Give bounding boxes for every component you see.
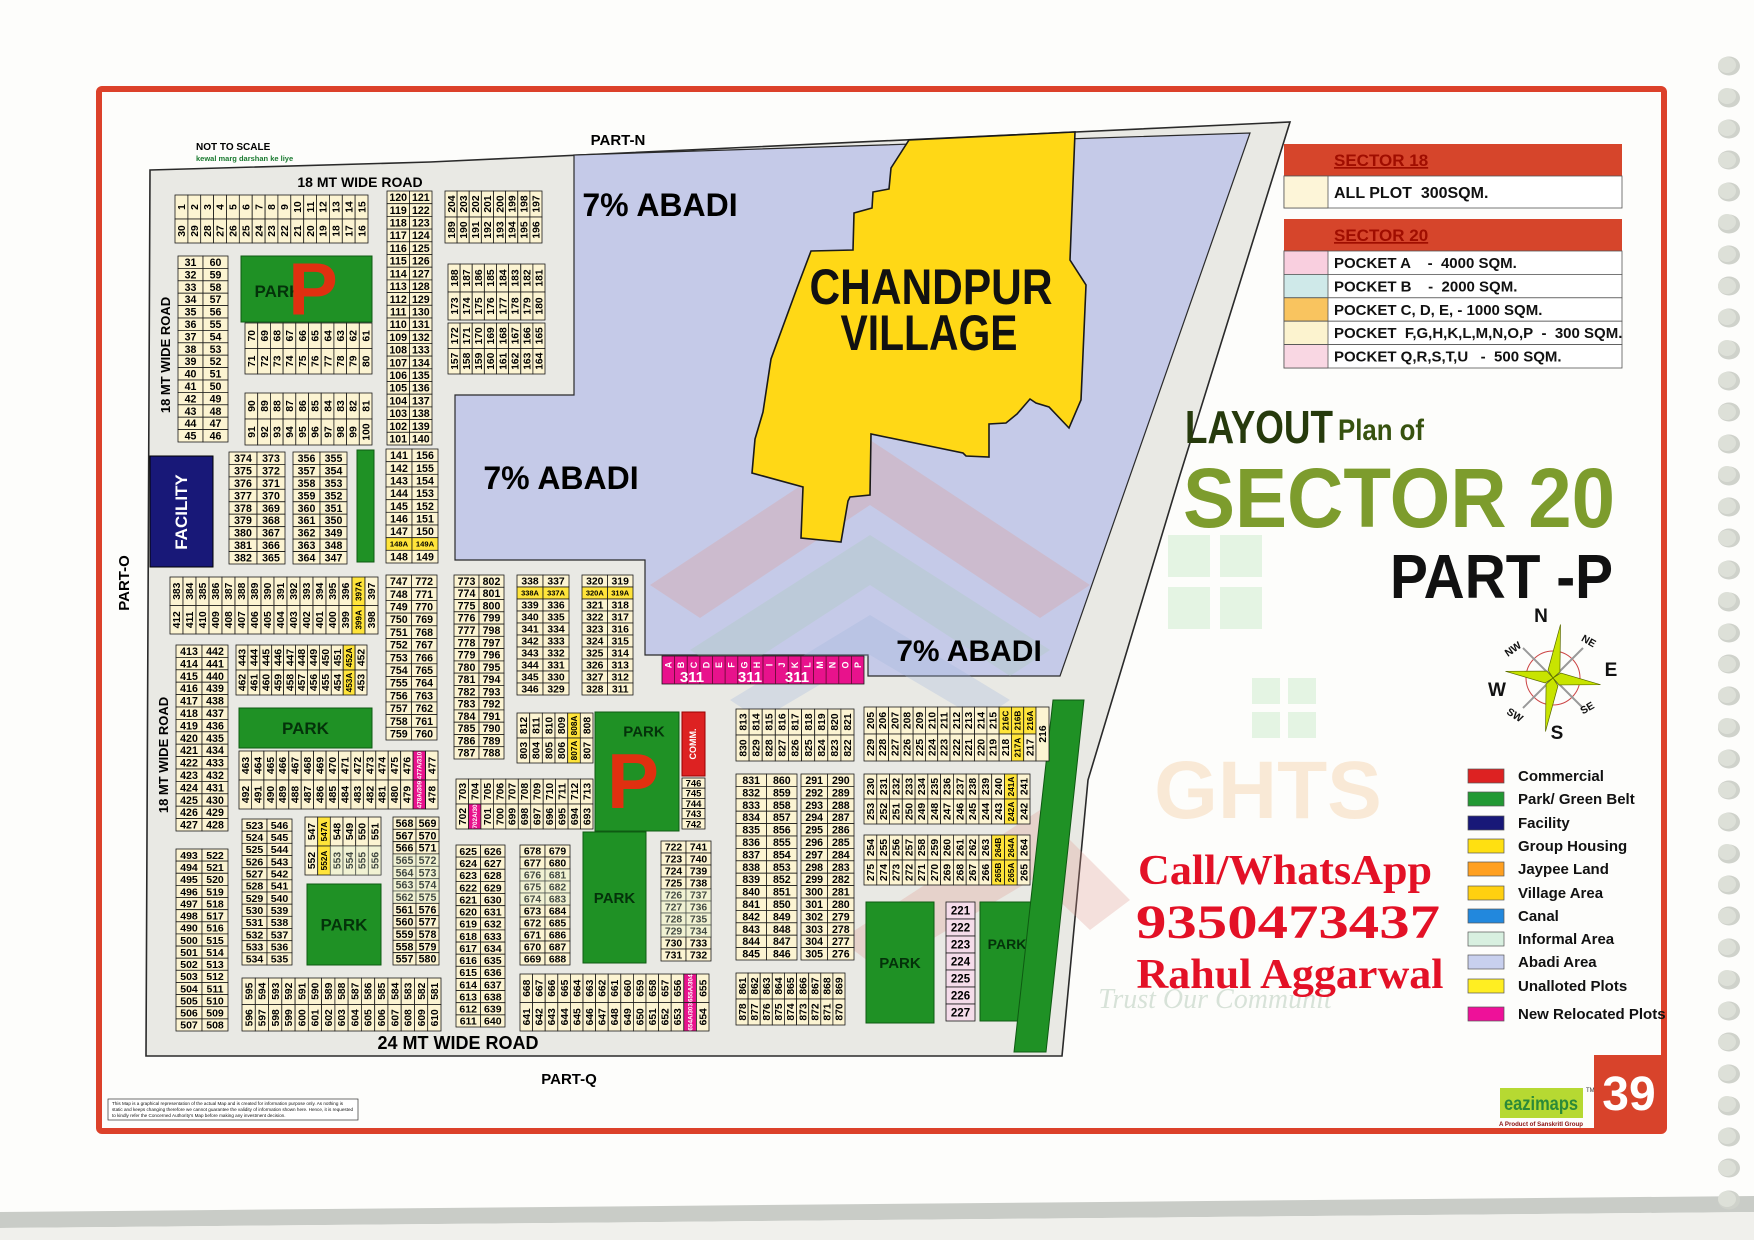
svg-text:853: 853 bbox=[773, 862, 791, 874]
svg-text:861: 861 bbox=[738, 977, 749, 994]
svg-text:783: 783 bbox=[458, 699, 476, 711]
svg-text:439: 439 bbox=[206, 683, 224, 695]
svg-text:531: 531 bbox=[246, 917, 264, 929]
svg-text:192: 192 bbox=[483, 221, 494, 238]
svg-text:339: 339 bbox=[521, 601, 539, 612]
svg-text:K: K bbox=[790, 661, 800, 668]
svg-text:H: H bbox=[752, 662, 762, 669]
svg-text:812: 812 bbox=[519, 717, 530, 734]
svg-text:654A/303: 654A/303 bbox=[687, 1003, 694, 1031]
svg-text:P: P bbox=[288, 248, 337, 331]
svg-text:842: 842 bbox=[742, 911, 760, 923]
svg-text:711: 711 bbox=[558, 783, 569, 800]
svg-text:793: 793 bbox=[483, 686, 501, 698]
svg-text:517: 517 bbox=[206, 910, 224, 922]
svg-text:COMM.: COMM. bbox=[688, 729, 698, 760]
svg-text:7% ABADI: 7% ABADI bbox=[483, 460, 638, 496]
svg-text:375: 375 bbox=[234, 466, 252, 478]
svg-text:491: 491 bbox=[253, 786, 264, 803]
svg-text:878: 878 bbox=[738, 1003, 749, 1020]
svg-text:619: 619 bbox=[459, 919, 477, 931]
svg-text:464: 464 bbox=[253, 757, 264, 774]
svg-text:366: 366 bbox=[262, 540, 280, 552]
svg-text:459: 459 bbox=[273, 674, 284, 691]
svg-text:667: 667 bbox=[535, 979, 546, 996]
svg-text:529: 529 bbox=[246, 893, 264, 905]
svg-text:295: 295 bbox=[805, 825, 823, 837]
svg-text:836: 836 bbox=[742, 837, 760, 849]
svg-text:488: 488 bbox=[291, 786, 302, 803]
svg-text:596: 596 bbox=[244, 1009, 255, 1026]
svg-text:288: 288 bbox=[832, 800, 850, 812]
svg-text:845: 845 bbox=[742, 949, 760, 961]
svg-text:401: 401 bbox=[315, 611, 326, 628]
svg-text:457: 457 bbox=[297, 674, 308, 691]
svg-text:56: 56 bbox=[210, 307, 222, 319]
svg-text:869: 869 bbox=[835, 977, 846, 994]
svg-text:153: 153 bbox=[416, 488, 434, 500]
svg-text:472: 472 bbox=[353, 757, 364, 774]
svg-text:414: 414 bbox=[180, 658, 198, 670]
svg-text:822: 822 bbox=[843, 739, 854, 756]
svg-text:185: 185 bbox=[486, 269, 497, 286]
svg-text:248: 248 bbox=[930, 803, 941, 820]
svg-text:4: 4 bbox=[216, 204, 227, 210]
svg-text:118: 118 bbox=[390, 218, 407, 230]
svg-text:50: 50 bbox=[210, 381, 222, 393]
svg-text:474: 474 bbox=[378, 757, 389, 774]
svg-text:77: 77 bbox=[323, 355, 334, 367]
svg-text:607: 607 bbox=[390, 1009, 401, 1026]
svg-text:380: 380 bbox=[234, 528, 252, 540]
svg-text:760: 760 bbox=[415, 729, 433, 741]
svg-text:837: 837 bbox=[742, 849, 760, 861]
svg-text:211: 211 bbox=[940, 712, 951, 729]
svg-text:86: 86 bbox=[298, 400, 309, 412]
svg-text:Call/WhatsApp: Call/WhatsApp bbox=[1138, 848, 1432, 894]
svg-text:813: 813 bbox=[738, 713, 749, 730]
svg-text:217: 217 bbox=[1026, 739, 1037, 756]
svg-text:206: 206 bbox=[878, 712, 889, 729]
svg-text:132: 132 bbox=[412, 332, 430, 344]
svg-text:91: 91 bbox=[247, 426, 258, 438]
svg-text:VILLAGE: VILLAGE bbox=[841, 305, 1018, 361]
svg-text:693: 693 bbox=[583, 808, 594, 825]
svg-text:382: 382 bbox=[234, 553, 252, 565]
svg-text:673: 673 bbox=[524, 907, 542, 918]
svg-text:338A: 338A bbox=[521, 589, 539, 598]
svg-text:583: 583 bbox=[404, 982, 415, 999]
svg-text:344: 344 bbox=[521, 661, 539, 672]
svg-text:638: 638 bbox=[484, 991, 502, 1003]
svg-text:559: 559 bbox=[396, 929, 414, 941]
svg-text:119: 119 bbox=[390, 205, 407, 217]
svg-text:655: 655 bbox=[698, 979, 709, 996]
svg-text:754: 754 bbox=[390, 665, 408, 677]
svg-text:340: 340 bbox=[521, 613, 539, 624]
svg-text:165: 165 bbox=[535, 327, 546, 344]
svg-text:364: 364 bbox=[298, 553, 316, 565]
svg-text:45: 45 bbox=[185, 431, 197, 443]
svg-text:579: 579 bbox=[419, 941, 437, 953]
svg-text:337A: 337A bbox=[547, 589, 565, 598]
svg-text:226: 226 bbox=[903, 739, 914, 756]
svg-text:221: 221 bbox=[951, 906, 971, 918]
svg-text:523: 523 bbox=[246, 820, 264, 832]
svg-text:790: 790 bbox=[483, 723, 501, 735]
svg-text:GHTS: GHTS bbox=[1154, 745, 1382, 836]
svg-text:D: D bbox=[701, 661, 711, 668]
svg-text:804: 804 bbox=[532, 742, 543, 759]
svg-text:405: 405 bbox=[263, 611, 274, 628]
svg-text:SECTOR 20: SECTOR 20 bbox=[1334, 226, 1428, 245]
svg-text:568: 568 bbox=[396, 818, 414, 830]
svg-text:779: 779 bbox=[458, 650, 476, 662]
svg-text:277: 277 bbox=[832, 936, 850, 948]
svg-text:236: 236 bbox=[943, 778, 954, 795]
svg-text:440: 440 bbox=[206, 671, 224, 683]
svg-text:412: 412 bbox=[172, 611, 183, 628]
svg-text:776: 776 bbox=[458, 613, 476, 625]
svg-text:584: 584 bbox=[390, 982, 401, 999]
svg-text:671: 671 bbox=[524, 931, 542, 942]
svg-text:107: 107 bbox=[389, 357, 407, 369]
svg-text:31: 31 bbox=[185, 257, 197, 269]
svg-text:223: 223 bbox=[940, 739, 951, 756]
svg-text:872: 872 bbox=[810, 1003, 821, 1020]
svg-text:542: 542 bbox=[271, 869, 289, 881]
svg-text:389: 389 bbox=[250, 582, 261, 599]
svg-text:348: 348 bbox=[325, 540, 343, 552]
svg-text:578: 578 bbox=[419, 929, 437, 941]
svg-text:345: 345 bbox=[521, 673, 539, 684]
svg-text:298: 298 bbox=[805, 862, 823, 874]
svg-text:418: 418 bbox=[180, 708, 198, 720]
svg-text:360: 360 bbox=[298, 503, 316, 515]
svg-text:751: 751 bbox=[390, 627, 408, 639]
svg-text:SECTOR 18: SECTOR 18 bbox=[1334, 151, 1428, 170]
svg-text:513: 513 bbox=[206, 959, 224, 971]
svg-text:591: 591 bbox=[297, 982, 308, 999]
svg-text:868: 868 bbox=[823, 977, 834, 994]
svg-text:134: 134 bbox=[412, 357, 430, 369]
svg-text:PARK: PARK bbox=[988, 936, 1027, 952]
svg-text:335: 335 bbox=[547, 613, 565, 624]
svg-text:784: 784 bbox=[458, 711, 476, 723]
svg-text:765: 765 bbox=[415, 665, 433, 677]
svg-text:841: 841 bbox=[742, 899, 760, 911]
svg-text:694: 694 bbox=[570, 808, 581, 825]
svg-text:406: 406 bbox=[250, 611, 261, 628]
svg-text:409: 409 bbox=[211, 611, 222, 628]
svg-text:486: 486 bbox=[316, 786, 327, 803]
svg-text:89: 89 bbox=[260, 400, 271, 412]
svg-text:821: 821 bbox=[843, 713, 854, 730]
svg-text:318: 318 bbox=[612, 601, 630, 612]
svg-text:432: 432 bbox=[206, 770, 224, 782]
svg-text:653: 653 bbox=[673, 1008, 684, 1025]
svg-text:792: 792 bbox=[483, 699, 501, 711]
svg-text:139: 139 bbox=[412, 421, 430, 433]
svg-text:590: 590 bbox=[311, 982, 322, 999]
svg-text:571: 571 bbox=[419, 843, 437, 855]
svg-text:201: 201 bbox=[483, 195, 494, 212]
svg-text:787: 787 bbox=[458, 748, 476, 760]
svg-text:528: 528 bbox=[246, 881, 264, 893]
svg-text:763: 763 bbox=[415, 690, 433, 702]
svg-text:TM: TM bbox=[1586, 1088, 1595, 1094]
svg-text:150: 150 bbox=[416, 526, 434, 538]
svg-text:454: 454 bbox=[333, 674, 344, 691]
svg-text:640: 640 bbox=[484, 1016, 502, 1028]
svg-text:548: 548 bbox=[332, 823, 343, 840]
svg-text:493: 493 bbox=[180, 850, 198, 862]
svg-text:659: 659 bbox=[635, 979, 646, 996]
svg-text:731: 731 bbox=[665, 951, 683, 962]
svg-text:98: 98 bbox=[336, 426, 347, 438]
svg-text:314: 314 bbox=[612, 649, 630, 660]
svg-text:570: 570 bbox=[419, 830, 437, 842]
svg-text:285: 285 bbox=[832, 837, 850, 849]
svg-text:265A: 265A bbox=[1007, 863, 1016, 883]
svg-text:482: 482 bbox=[365, 786, 376, 803]
svg-text:116: 116 bbox=[390, 243, 407, 255]
svg-text:633: 633 bbox=[484, 931, 502, 943]
svg-text:740: 740 bbox=[690, 855, 708, 866]
svg-text:195: 195 bbox=[520, 221, 531, 238]
svg-text:POCKET Q,R,S,T,U - 500 SQM.: POCKET Q,R,S,T,U - 500 SQM. bbox=[1334, 349, 1562, 366]
svg-text:311: 311 bbox=[785, 669, 809, 686]
svg-text:L: L bbox=[802, 662, 812, 668]
svg-text:747: 747 bbox=[390, 576, 408, 588]
svg-text:856: 856 bbox=[773, 825, 791, 837]
svg-text:92: 92 bbox=[260, 426, 271, 438]
svg-text:Jaypee Land: Jaypee Land bbox=[1518, 861, 1609, 878]
svg-text:560: 560 bbox=[396, 917, 414, 929]
svg-text:725: 725 bbox=[665, 879, 683, 890]
svg-text:627: 627 bbox=[484, 858, 502, 870]
svg-text:697: 697 bbox=[533, 808, 544, 825]
svg-text:202: 202 bbox=[471, 195, 482, 212]
svg-text:7: 7 bbox=[254, 204, 265, 210]
svg-text:411: 411 bbox=[185, 611, 196, 628]
svg-text:27: 27 bbox=[216, 225, 227, 237]
svg-text:POCKET B - 2000 SQM.: POCKET B - 2000 SQM. bbox=[1334, 278, 1517, 295]
svg-text:535: 535 bbox=[271, 954, 289, 966]
svg-text:511: 511 bbox=[207, 983, 224, 995]
svg-text:311: 311 bbox=[612, 685, 629, 696]
svg-text:359: 359 bbox=[298, 490, 316, 502]
svg-text:800: 800 bbox=[483, 601, 501, 613]
svg-text:819: 819 bbox=[817, 713, 828, 730]
svg-text:796: 796 bbox=[483, 650, 501, 662]
svg-text:385: 385 bbox=[198, 582, 209, 599]
svg-text:223: 223 bbox=[951, 940, 970, 952]
svg-text:1: 1 bbox=[177, 204, 188, 210]
svg-text:74: 74 bbox=[285, 355, 296, 367]
svg-text:264A: 264A bbox=[1007, 838, 1016, 858]
svg-text:421: 421 bbox=[180, 745, 198, 757]
svg-text:A Product of SanskritI Group: A Product of SanskritI Group bbox=[1499, 1121, 1583, 1128]
svg-text:839: 839 bbox=[742, 874, 760, 886]
svg-text:507: 507 bbox=[180, 1020, 198, 1032]
svg-text:485: 485 bbox=[328, 786, 339, 803]
svg-text:805: 805 bbox=[544, 742, 555, 759]
svg-text:156: 156 bbox=[416, 450, 434, 462]
svg-text:I: I bbox=[765, 664, 775, 667]
svg-text:428: 428 bbox=[206, 820, 224, 832]
svg-text:311: 311 bbox=[680, 669, 704, 686]
svg-text:544: 544 bbox=[271, 844, 289, 856]
svg-text:58: 58 bbox=[210, 282, 222, 294]
svg-text:90: 90 bbox=[247, 400, 258, 412]
svg-text:532: 532 bbox=[246, 929, 264, 941]
svg-text:378: 378 bbox=[234, 503, 252, 515]
svg-text:658: 658 bbox=[648, 979, 659, 996]
svg-text:467: 467 bbox=[291, 757, 302, 774]
svg-text:403: 403 bbox=[289, 611, 300, 628]
svg-text:135: 135 bbox=[412, 370, 430, 382]
svg-text:319: 319 bbox=[612, 577, 630, 588]
svg-text:829: 829 bbox=[751, 739, 762, 756]
svg-text:281: 281 bbox=[832, 887, 850, 899]
svg-text:798: 798 bbox=[483, 625, 501, 637]
svg-text:11: 11 bbox=[306, 201, 317, 212]
svg-text:484: 484 bbox=[340, 786, 351, 803]
svg-text:600: 600 bbox=[297, 1009, 308, 1026]
svg-text:444: 444 bbox=[250, 649, 261, 666]
svg-text:67: 67 bbox=[285, 330, 296, 342]
svg-text:271: 271 bbox=[917, 864, 928, 881]
svg-text:E: E bbox=[1605, 660, 1618, 681]
svg-text:398: 398 bbox=[367, 611, 378, 628]
svg-text:PARK: PARK bbox=[321, 916, 369, 935]
svg-text:129: 129 bbox=[412, 294, 430, 306]
svg-text:316: 316 bbox=[612, 625, 630, 636]
svg-text:Village Area: Village Area bbox=[1518, 885, 1604, 902]
svg-text:858: 858 bbox=[773, 800, 791, 812]
svg-text:326: 326 bbox=[586, 661, 604, 672]
svg-text:723: 723 bbox=[665, 855, 683, 866]
svg-text:220: 220 bbox=[976, 739, 987, 756]
svg-text:536: 536 bbox=[271, 942, 289, 954]
svg-text:832: 832 bbox=[742, 787, 760, 799]
svg-text:225: 225 bbox=[951, 974, 971, 986]
svg-text:561: 561 bbox=[396, 904, 414, 916]
svg-text:179: 179 bbox=[523, 297, 534, 314]
svg-text:396: 396 bbox=[341, 582, 352, 599]
svg-text:678: 678 bbox=[524, 847, 542, 858]
svg-text:57: 57 bbox=[210, 294, 222, 306]
svg-text:419: 419 bbox=[180, 720, 198, 732]
svg-text:530: 530 bbox=[246, 905, 264, 917]
svg-text:782: 782 bbox=[458, 686, 476, 698]
svg-text:799: 799 bbox=[483, 613, 501, 625]
svg-text:610: 610 bbox=[430, 1009, 441, 1026]
svg-text:490: 490 bbox=[266, 786, 277, 803]
svg-text:668: 668 bbox=[522, 979, 533, 996]
svg-text:265B: 265B bbox=[994, 863, 1003, 883]
svg-text:831: 831 bbox=[742, 775, 760, 787]
svg-text:598: 598 bbox=[271, 1009, 282, 1026]
svg-text:NOT TO SCALE: NOT TO SCALE bbox=[196, 142, 271, 153]
svg-text:B: B bbox=[676, 661, 686, 668]
svg-text:601: 601 bbox=[311, 1009, 322, 1026]
svg-text:97: 97 bbox=[323, 426, 334, 438]
svg-text:863: 863 bbox=[762, 977, 773, 994]
svg-text:106: 106 bbox=[389, 370, 407, 382]
svg-text:549: 549 bbox=[345, 823, 356, 840]
svg-text:312: 312 bbox=[612, 673, 630, 684]
svg-text:237: 237 bbox=[956, 778, 967, 795]
svg-text:New Relocated Plots: New Relocated Plots bbox=[1518, 1006, 1666, 1023]
svg-text:128: 128 bbox=[412, 281, 430, 293]
svg-text:83: 83 bbox=[336, 400, 347, 412]
svg-text:145: 145 bbox=[390, 501, 408, 513]
svg-text:586: 586 bbox=[364, 982, 375, 999]
svg-text:260: 260 bbox=[943, 839, 954, 856]
svg-text:628: 628 bbox=[484, 870, 502, 882]
svg-text:164: 164 bbox=[535, 352, 546, 369]
svg-text:666: 666 bbox=[547, 979, 558, 996]
svg-text:305: 305 bbox=[805, 949, 823, 961]
svg-text:349: 349 bbox=[325, 528, 343, 540]
svg-text:PART -P: PART -P bbox=[1390, 543, 1613, 612]
svg-text:833: 833 bbox=[742, 800, 760, 812]
svg-text:169: 169 bbox=[486, 327, 497, 344]
svg-text:228: 228 bbox=[878, 739, 889, 756]
svg-text:297: 297 bbox=[805, 849, 823, 861]
svg-text:N: N bbox=[828, 662, 838, 669]
svg-text:755: 755 bbox=[390, 678, 408, 690]
svg-text:423: 423 bbox=[180, 770, 198, 782]
svg-text:63: 63 bbox=[336, 330, 347, 342]
svg-text:764: 764 bbox=[415, 678, 433, 690]
svg-text:781: 781 bbox=[458, 674, 476, 686]
svg-text:452A: 452A bbox=[345, 648, 354, 668]
svg-text:242A: 242A bbox=[1007, 802, 1016, 822]
svg-text:249: 249 bbox=[917, 803, 928, 820]
svg-text:618: 618 bbox=[459, 931, 477, 943]
svg-text:500: 500 bbox=[180, 935, 198, 947]
svg-text:431: 431 bbox=[206, 782, 224, 794]
svg-text:495: 495 bbox=[180, 874, 198, 886]
svg-text:146: 146 bbox=[390, 514, 408, 526]
svg-text:101: 101 bbox=[389, 433, 407, 445]
svg-text:391: 391 bbox=[276, 582, 287, 599]
svg-text:79: 79 bbox=[349, 355, 360, 367]
svg-text:612: 612 bbox=[459, 1004, 477, 1016]
svg-text:614: 614 bbox=[459, 979, 477, 991]
svg-text:606: 606 bbox=[377, 1009, 388, 1026]
svg-text:620: 620 bbox=[459, 906, 477, 918]
svg-text:36: 36 bbox=[185, 319, 197, 331]
svg-text:PARK: PARK bbox=[282, 719, 330, 738]
svg-text:59: 59 bbox=[210, 269, 222, 281]
svg-text:7% ABADI: 7% ABADI bbox=[896, 635, 1042, 668]
svg-text:644: 644 bbox=[560, 1008, 571, 1025]
svg-text:699: 699 bbox=[508, 808, 519, 825]
svg-text:773: 773 bbox=[458, 576, 476, 588]
svg-text:387: 387 bbox=[224, 582, 235, 599]
svg-text:370: 370 bbox=[262, 490, 280, 502]
svg-text:186: 186 bbox=[474, 269, 485, 286]
svg-text:654: 654 bbox=[698, 1008, 709, 1025]
svg-text:276: 276 bbox=[832, 949, 850, 961]
svg-text:569: 569 bbox=[419, 818, 437, 830]
svg-text:661: 661 bbox=[610, 979, 621, 996]
svg-text:24: 24 bbox=[254, 225, 265, 237]
